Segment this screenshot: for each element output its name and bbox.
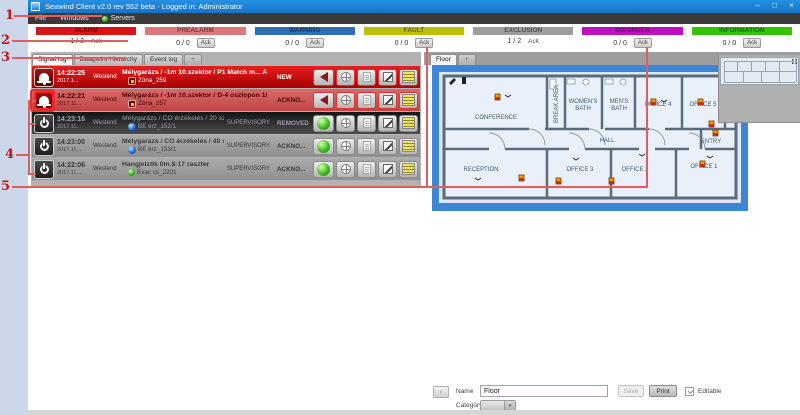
- row-state: ACKNO...: [277, 97, 310, 104]
- tab-add[interactable]: +: [184, 54, 202, 65]
- tab-floor[interactable]: Floor: [430, 54, 457, 65]
- edit-button[interactable]: [378, 69, 397, 86]
- back-button[interactable]: ‹: [433, 386, 449, 398]
- row-subtitle: Évac cs_2201: [137, 169, 177, 176]
- status-category-exclusion: EXCLUSION 1 / 2Ack: [473, 27, 573, 52]
- ack-button[interactable]: Ack: [197, 38, 215, 48]
- row-title: Mélygarázs / CO érzékelés / 40 százalék …: [122, 138, 224, 146]
- row-time: 14:22:25: [57, 70, 90, 78]
- signal-row[interactable]: 14:23:162017.11... Westend Mélygarázs / …: [32, 112, 420, 134]
- annotation-number-2: 2: [1, 33, 10, 48]
- row-title: Mélygarázs / -1m 10.szektor / P1 Match m…: [122, 69, 267, 77]
- room-label-break-area: BREAK AREA: [554, 85, 560, 123]
- list-icon: [402, 163, 415, 175]
- row-supervisory: SUPERVISORY: [227, 143, 274, 149]
- status-sphere-button[interactable]: [313, 161, 334, 178]
- status-category-fault: FAULT 0 / 0Ack: [364, 27, 464, 52]
- jump-back-button[interactable]: [313, 69, 334, 86]
- bell-icon: [34, 91, 54, 110]
- list-icon: [402, 140, 415, 152]
- status-sphere-button[interactable]: [313, 138, 334, 155]
- row-subtitle: Zóna_257: [138, 100, 166, 107]
- signal-row[interactable]: 14:22:062017.11... Westend Hangjelzők 0m…: [32, 158, 420, 180]
- annotation-number-4: 4: [5, 147, 14, 162]
- sensor-icon[interactable]: [698, 99, 703, 105]
- row-subtitle: BE érz_153/1: [138, 146, 176, 153]
- close-button[interactable]: ×: [783, 0, 800, 13]
- minimize-button[interactable]: –: [749, 0, 766, 13]
- editable-label: Editable: [698, 388, 722, 395]
- map-locate-button[interactable]: [336, 115, 355, 132]
- detector-badge-icon: [128, 123, 136, 131]
- title-bar: Seawind Client v2.0 rev 552 beta - Logge…: [28, 0, 800, 13]
- row-site: Westend: [93, 120, 119, 126]
- annotation-number-5: 5: [1, 179, 10, 194]
- annotation-number-1: 1: [5, 8, 14, 23]
- category-bar: EXCLUSION: [473, 27, 573, 35]
- annotation-number-3: 3: [1, 50, 10, 65]
- document-icon: [363, 164, 371, 174]
- room-label-office2: OFFICE 2: [621, 167, 649, 173]
- status-band: ALARM 1 / 2Ack PREALARM 0 / 0Ack WARNING…: [28, 24, 800, 52]
- row-site: Westend: [93, 97, 119, 103]
- ack-button[interactable]: Ack: [306, 38, 324, 48]
- edit-button[interactable]: [378, 115, 397, 132]
- category-count: 0 / 0: [395, 40, 409, 47]
- sensor-icon[interactable]: [709, 121, 714, 127]
- edit-icon: [383, 118, 393, 128]
- row-subtitle: BE érz_152/1: [138, 123, 176, 130]
- edit-button[interactable]: [378, 138, 397, 155]
- signal-row[interactable]: 14:22:212017.11... Westend Mélygarázs / …: [32, 89, 420, 111]
- status-category-prealarm: PREALARM 0 / 0Ack: [145, 27, 245, 52]
- list-icon: [402, 117, 415, 129]
- map-locate-button[interactable]: [336, 69, 355, 86]
- category-bar: ALARM: [36, 27, 136, 35]
- editable-checkbox[interactable]: [685, 387, 694, 396]
- category-bar: INFORMATION: [692, 27, 792, 35]
- sensor-icon[interactable]: [519, 175, 524, 181]
- row-date: 2017.11...: [57, 147, 90, 153]
- outer-walls: [444, 76, 736, 198]
- ack-button[interactable]: Ack: [415, 38, 433, 48]
- document-button[interactable]: [357, 161, 376, 178]
- row-date: 2017.11...: [57, 124, 90, 130]
- row-time: 14:22:06: [57, 162, 90, 170]
- category-label: Category: [456, 402, 482, 409]
- room-label-mens-bath-1: MEN'S: [610, 99, 628, 105]
- globe-icon: [341, 72, 351, 82]
- details-button[interactable]: [399, 161, 418, 178]
- map-locate-button[interactable]: [336, 138, 355, 155]
- ack-button[interactable]: Ack: [743, 38, 761, 48]
- menu-servers[interactable]: Servers: [111, 13, 142, 24]
- row-title: Hangjelzők 0m.$-17 raszter: [122, 161, 224, 169]
- category-bar: FAULT: [364, 27, 464, 35]
- power-icon: [34, 160, 54, 179]
- category-bar: WARNING: [255, 27, 355, 35]
- app-window: Seawind Client v2.0 rev 552 beta - Logge…: [28, 0, 800, 415]
- document-button[interactable]: [357, 115, 376, 132]
- details-button[interactable]: [399, 92, 418, 109]
- globe-icon: [341, 95, 351, 105]
- list-icon: [402, 71, 415, 83]
- row-subtitle: Zóna_259: [138, 77, 166, 84]
- ack-label: Ack: [91, 38, 102, 45]
- tab-signal-log[interactable]: Signal log: [32, 54, 73, 65]
- category-count: 1 / 2: [508, 38, 522, 45]
- menu-windows[interactable]: Windows: [53, 13, 95, 24]
- signal-row[interactable]: 14:22:252017.1... Westend Mélygarázs / -…: [32, 66, 420, 88]
- signal-row[interactable]: 14:23:002017.11... Westend Mélygarázs / …: [32, 135, 420, 157]
- document-icon: [363, 95, 371, 105]
- category-count: 1 / 2: [70, 38, 84, 45]
- ack-button[interactable]: Ack: [634, 38, 652, 48]
- category-bar: PREALARM: [145, 27, 245, 35]
- details-button[interactable]: [399, 69, 418, 86]
- category-select-value: [481, 401, 504, 410]
- document-button[interactable]: [357, 69, 376, 86]
- room-label-office3: OFFICE 3: [566, 167, 594, 173]
- evac-badge-icon: [128, 169, 135, 176]
- detector-badge-icon: [128, 146, 136, 154]
- status-category-warning: WARNING 0 / 0Ack: [255, 27, 355, 52]
- zone-badge-icon: [128, 100, 136, 108]
- row-state: NEW: [277, 74, 310, 81]
- ack-label: Ack: [528, 38, 539, 45]
- row-title: Mélygarázs / CO érzékelés / 20 százalék …: [122, 115, 224, 123]
- document-button[interactable]: [357, 138, 376, 155]
- edit-icon: [383, 164, 393, 174]
- arrow-left-icon: [320, 95, 328, 105]
- row-date: 2017.1...: [57, 78, 90, 84]
- document-button[interactable]: [357, 92, 376, 109]
- room-label-entry: ENTRY: [701, 139, 721, 145]
- document-icon: [363, 118, 371, 128]
- globe-icon: [341, 141, 351, 151]
- signal-log-panel: Signal log Datapoint Hierarchy Event log…: [31, 52, 421, 187]
- row-state: REMOVED: [277, 120, 310, 127]
- signal-tabstrip: Signal log Datapoint Hierarchy Event log…: [31, 52, 421, 65]
- room-label-office4: OFFICE 4: [644, 102, 672, 108]
- maximize-button[interactable]: □: [766, 0, 783, 13]
- map-locate-button[interactable]: [336, 161, 355, 178]
- tab-map-add[interactable]: +: [458, 54, 476, 65]
- category-count: 0 / 0: [285, 40, 299, 47]
- sensor-icon[interactable]: [713, 130, 718, 136]
- document-icon: [363, 72, 371, 82]
- window-bottom-edge: [28, 410, 800, 415]
- app-icon: [31, 2, 40, 11]
- edit-button[interactable]: [378, 161, 397, 178]
- category-count: 0 / 0: [176, 40, 190, 47]
- sensor-icon[interactable]: [556, 178, 561, 184]
- sensor-icon[interactable]: [651, 99, 656, 105]
- details-button[interactable]: [399, 115, 418, 132]
- edit-icon: [383, 141, 393, 151]
- power-icon: [34, 137, 54, 156]
- menu-bar: File Windows Servers: [28, 13, 800, 24]
- details-button[interactable]: [399, 138, 418, 155]
- map-locate-button[interactable]: [336, 92, 355, 109]
- globe-icon: [341, 164, 351, 174]
- sensor-icon[interactable]: [700, 161, 705, 167]
- row-supervisory: SUPERVISORY: [227, 166, 274, 172]
- print-button[interactable]: Print: [649, 385, 677, 397]
- sensor-icon[interactable]: [495, 94, 500, 100]
- minimap-expand-icon[interactable]: [791, 58, 798, 65]
- row-state: ACKNO...: [277, 143, 310, 150]
- list-icon: [402, 94, 415, 106]
- row-time: 14:23:16: [57, 116, 90, 124]
- chevron-down-icon: ▾: [504, 401, 515, 410]
- server-status-icon: [102, 16, 108, 22]
- category-bar: DISORDER: [582, 27, 682, 35]
- save-button[interactable]: Save: [618, 385, 644, 397]
- minimap-overview[interactable]: [718, 55, 800, 123]
- status-sphere-button[interactable]: [313, 115, 334, 132]
- status-sphere-icon: [317, 117, 330, 130]
- row-site: Westend: [93, 143, 119, 149]
- row-state: ACKNO...: [277, 166, 310, 173]
- room-label-womens-bath-1: WOMEN'S: [569, 99, 598, 105]
- status-sphere-icon: [317, 140, 330, 153]
- row-site: Westend: [93, 166, 119, 172]
- document-icon: [363, 141, 371, 151]
- power-icon: [34, 114, 54, 133]
- status-sphere-icon: [317, 163, 330, 176]
- floor-plan-drawing: CONFERENCE BREAK AREA WOMEN'S BATH MEN'S…: [439, 72, 741, 203]
- edit-icon: [383, 72, 393, 82]
- row-date: 2017.11...: [57, 101, 90, 107]
- jump-back-button[interactable]: [313, 92, 334, 109]
- name-label: Name: [456, 388, 473, 395]
- bell-icon: [34, 68, 54, 87]
- row-supervisory: SUPERVISORY: [227, 120, 274, 126]
- minimap-floorplan: [720, 57, 799, 85]
- globe-icon: [341, 118, 351, 128]
- status-category-alarm: ALARM 1 / 2Ack: [36, 27, 136, 52]
- zone-badge-icon: [128, 77, 136, 85]
- tab-datapoint-hierarchy[interactable]: Datapoint Hierarchy: [74, 54, 143, 65]
- status-category-information: INFORMATION 0 / 0Ack: [692, 27, 792, 52]
- row-title: Mélygarázs / -1m 10.szektor / D-4 oszlop…: [122, 92, 267, 100]
- menu-file[interactable]: File: [28, 13, 53, 24]
- room-label-reception: RECEPTION: [463, 167, 498, 173]
- tab-event-log[interactable]: Event log: [144, 54, 183, 65]
- window-title: Seawind Client v2.0 rev 552 beta - Logge…: [45, 2, 243, 11]
- row-date: 2017.11...: [57, 170, 90, 176]
- arrow-left-icon: [320, 72, 328, 82]
- name-input[interactable]: [480, 385, 608, 397]
- edit-button[interactable]: [378, 92, 397, 109]
- category-count: 0 / 0: [613, 40, 627, 47]
- category-count: 0 / 0: [723, 40, 737, 47]
- row-time: 14:22:21: [57, 93, 90, 101]
- row-site: Westend: [93, 74, 119, 80]
- status-category-disorder: DISORDER 0 / 0Ack: [582, 27, 682, 52]
- edit-icon: [383, 95, 393, 105]
- marker-icon: [462, 77, 466, 84]
- room-label-hall: HALL: [599, 138, 615, 144]
- floor-plan-map[interactable]: CONFERENCE BREAK AREA WOMEN'S BATH MEN'S…: [432, 65, 748, 211]
- room-label-mens-bath-2: BATH: [611, 106, 627, 112]
- sensor-icon[interactable]: [609, 178, 614, 184]
- row-time: 14:23:00: [57, 139, 90, 147]
- room-label-womens-bath-2: BATH: [575, 106, 591, 112]
- room-label-conference: CONFERENCE: [475, 115, 517, 121]
